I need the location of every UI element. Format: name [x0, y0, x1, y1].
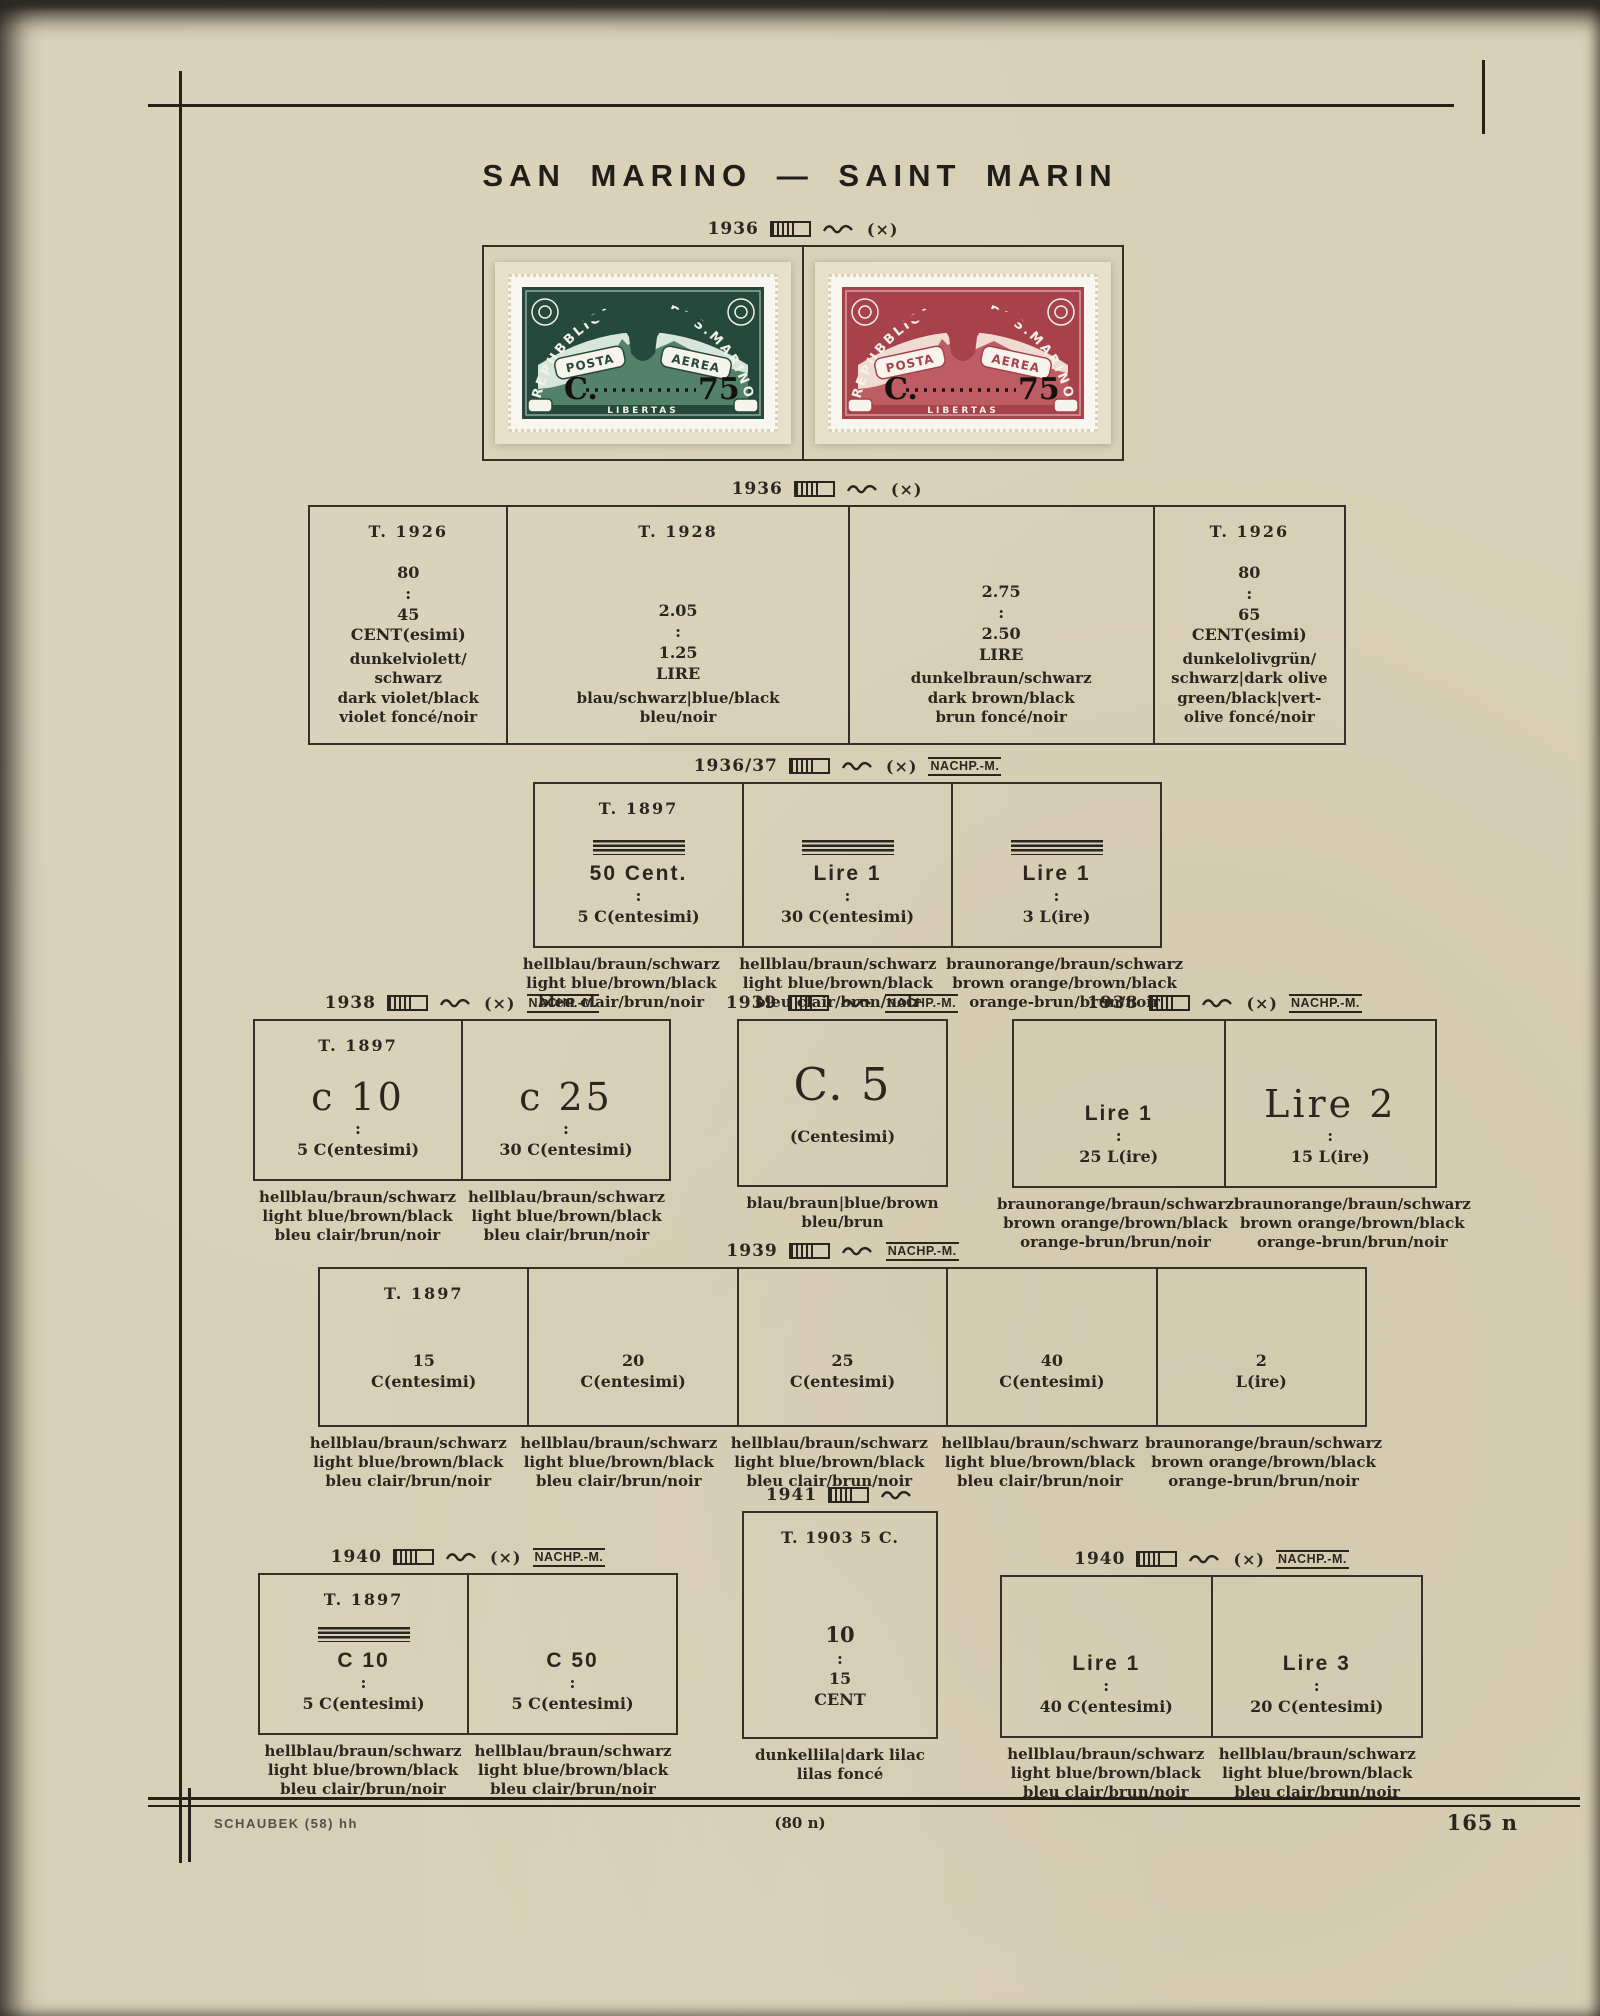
text-line: LIRE: [656, 664, 700, 685]
section-year-header: 1938 (×) NACHP.-M.: [1012, 992, 1437, 1014]
stamp-slot-box: T. 1897 15C(entesimi) 20C(entesimi) 25C(…: [318, 1267, 1367, 1427]
text-line: C(entesimi): [790, 1372, 895, 1393]
text-line: :: [979, 603, 1023, 624]
text-line: :: [297, 1119, 419, 1140]
section-year-header: 1938 (×) NACHP.-M.: [253, 992, 671, 1014]
color-description: dunkelviolett/schwarzdark violet/blackvi…: [338, 650, 479, 727]
text-line: hellblau/braun/schwarz: [1000, 1745, 1212, 1764]
text-line: :: [1291, 1126, 1370, 1147]
overprint-value: Lire 1: [1022, 862, 1090, 886]
text-line: 30 C(entesimi): [499, 1140, 632, 1161]
cross-symbol: (×): [490, 1548, 522, 1567]
perforation-icon: [794, 481, 835, 497]
text-line: 15: [814, 1669, 865, 1690]
text-line: dark violet/black: [338, 689, 479, 708]
denomination: 2L(ire): [1236, 1351, 1287, 1393]
stamp-slot-left: REPUBBLICA DI S.MARINO POSTA AEREA LIBER…: [484, 247, 802, 459]
text-line: 20 C(entesimi): [1250, 1697, 1383, 1718]
stamp-mount-box: REPUBBLICA DI S.MARINO POSTA AEREA LIBER…: [482, 245, 1124, 461]
text-line: 2.50: [979, 624, 1023, 645]
color-caption: blau/braun|blue/brownbleu/brun: [702, 1194, 983, 1232]
text-line: dark brown/black: [911, 689, 1092, 708]
text-line: 80: [351, 563, 466, 584]
stamp-slot-box: Lire 1 :25 L(ire) Lire 2 :15 L(ire): [1012, 1019, 1437, 1188]
text-line: dunkellila|dark lilac: [710, 1746, 970, 1765]
text-line: hellblau/braun/schwarz: [253, 1188, 462, 1207]
medallion-icon: [1048, 299, 1074, 325]
text-line: dunkelviolett/: [338, 650, 479, 669]
denomination: 20C(entesimi): [580, 1351, 685, 1393]
stamp-slot: T. 1897 15C(entesimi): [320, 1269, 527, 1425]
text-line: L(ire): [1236, 1372, 1287, 1393]
svg-text:75: 75: [698, 372, 740, 407]
stamp-slot: 25C(entesimi): [737, 1269, 946, 1425]
text-line: violet foncé/noir: [338, 708, 479, 727]
cross-symbol: (×): [1246, 994, 1278, 1013]
text-line: hellblau/braun/schwarz: [935, 1434, 1146, 1453]
text-line: hellblau/braun/schwarz: [468, 1742, 678, 1761]
text-line: light blue/brown/black: [462, 1207, 671, 1226]
text-line: olive foncé/noir: [1171, 708, 1327, 727]
footer-double-rule: [148, 1797, 1580, 1807]
nachp-symbol: NACHP.-M.: [527, 994, 600, 1013]
stamp-green-75c: REPUBBLICA DI S.MARINO POSTA AEREA LIBER…: [508, 274, 778, 432]
section-year-header: 1939 NACHP.-M.: [702, 992, 982, 1014]
nachp-symbol: NACHP.-M.: [886, 1242, 959, 1261]
stamp-mount: REPUBBLICA DI S.MARINO POSTA AEREA LIBER…: [815, 262, 1111, 444]
year-label: 1936/37: [694, 756, 778, 776]
text-line: light blue/brown/black: [1212, 1764, 1424, 1783]
text-line: 20: [580, 1351, 685, 1372]
text-line: :: [814, 1649, 865, 1670]
text-line: light blue/brown/black: [513, 974, 730, 993]
text-line: 5 C(entesimi): [577, 907, 699, 928]
text-line: :: [351, 584, 466, 605]
text-line: bleu/brun: [702, 1213, 983, 1232]
text-line: 45: [351, 605, 466, 626]
overprint-value: c 10: [311, 1075, 405, 1119]
stamp-red-75c: REPUBBLICA DI S.MARINO POSTA AEREA LIBER…: [828, 274, 1098, 432]
watermark-wavy-icon: [840, 998, 874, 1009]
text-line: brown orange/brown/black: [946, 974, 1183, 993]
stamp-slot: 20C(entesimi): [527, 1269, 736, 1425]
stamp-slot: T. 1897 50 Cent. :5 C(entesimi): [535, 784, 742, 946]
svg-text:LIBERTAS: LIBERTAS: [607, 406, 679, 416]
denomination: :15 L(ire): [1291, 1126, 1370, 1168]
caption-row: dunkellila|dark lilaclilas foncé: [710, 1746, 970, 1784]
section-1936-table: 1936 (×) T. 1926 80:45CENT(esimi) dunkel…: [308, 478, 1346, 745]
stamp-slot-box: T. 1903 5 C. 10:15CENT: [742, 1511, 938, 1739]
caption-row: hellblau/braun/schwarzlight blue/brown/b…: [253, 1188, 671, 1246]
text-line: (Centesimi): [790, 1127, 895, 1148]
text-line: C(entesimi): [371, 1372, 476, 1393]
denomination: :5 C(entesimi): [302, 1673, 424, 1715]
section-year-header: 1941: [710, 1484, 970, 1506]
year-label: 1939: [726, 993, 777, 1013]
cross-symbol: (×): [891, 480, 923, 499]
cross-symbol: (×): [484, 994, 516, 1013]
svg-text:75: 75: [1018, 372, 1060, 407]
nachp-symbol: NACHP.-M.: [533, 1548, 606, 1567]
text-line: bleu/noir: [577, 708, 780, 727]
stamp-image: REPUBBLICA DI S.MARINO POSTA AEREA LIBER…: [842, 287, 1084, 419]
denomination: :25 L(ire): [1079, 1126, 1158, 1168]
stamp-slot-box: C. 5 (Centesimi): [737, 1019, 948, 1187]
text-line: braunorange/braun/schwarz: [946, 955, 1183, 974]
text-line: light blue/brown/black: [258, 1761, 468, 1780]
text-line: 2: [1236, 1351, 1287, 1372]
perforation-icon: [789, 758, 830, 774]
text-line: 2.05: [656, 601, 700, 622]
overprint-value: c 25: [519, 1075, 613, 1119]
stamp-slot: Lire 1 :3 L(ire): [951, 784, 1160, 946]
perforation-icon: [393, 1549, 434, 1565]
denomination: 15C(entesimi): [371, 1351, 476, 1393]
denomination: :5 C(entesimi): [511, 1673, 633, 1715]
nachp-symbol: NACHP.-M.: [928, 757, 1001, 776]
color-caption: hellblau/braun/schwarzlight blue/brown/b…: [462, 1188, 671, 1246]
denomination: 2.75:2.50LIRE: [979, 582, 1023, 665]
text-line: light blue/brown/black: [468, 1761, 678, 1780]
denomination: :30 C(entesimi): [499, 1119, 632, 1161]
frame-left-rule: [179, 71, 182, 1863]
watermark-wavy-icon: [445, 1552, 479, 1563]
section-year-header: 1940 (×) NACHP.-M.: [1000, 1548, 1423, 1570]
watermark-wavy-icon: [1201, 998, 1235, 1009]
overprint-bars-icon: [1011, 840, 1103, 855]
stamp-slot: Lire 1 :25 L(ire): [1014, 1021, 1224, 1186]
type-label: T. 1903 5 C.: [781, 1528, 899, 1547]
text-line: 5 C(entesimi): [297, 1140, 419, 1161]
overprint-value: Lire 1: [813, 862, 881, 886]
perforation-icon: [1149, 995, 1190, 1011]
svg-text:LIBERTAS: LIBERTAS: [927, 406, 999, 416]
perforation-icon: [828, 1487, 869, 1503]
stamp-image: REPUBBLICA DI S.MARINO POSTA AEREA LIBER…: [522, 287, 764, 419]
section-year-header: 1939 NACHP.-M.: [318, 1240, 1367, 1262]
text-line: 1.25: [656, 643, 700, 664]
page-number: 165 n: [1447, 1810, 1518, 1835]
text-line: 25: [790, 1351, 895, 1372]
text-line: dunkelolivgrün/: [1171, 650, 1327, 669]
type-label: T. 1897: [324, 1590, 404, 1609]
frame-right-tick: [1482, 60, 1485, 134]
text-line: blau/braun|blue/brown: [702, 1194, 983, 1213]
perforation-icon: [789, 1243, 830, 1259]
year-label: 1936: [732, 479, 783, 499]
color-caption: braunorange/braun/schwarzbrown orange/br…: [1145, 1434, 1382, 1492]
color-caption: dunkellila|dark lilaclilas foncé: [710, 1746, 970, 1784]
stamp-slot-right: REPUBBLICA DI S.MARINO POSTA AEREA LIBER…: [802, 247, 1122, 459]
plate-number: (80 n): [0, 1814, 1600, 1832]
year-label: 1941: [766, 1485, 817, 1505]
year-label: 1938: [1087, 993, 1138, 1013]
section-year-header: 1936/37 (×) NACHP.-M.: [533, 755, 1162, 777]
text-line: 5 C(entesimi): [302, 1694, 424, 1715]
caption-row: hellblau/braun/schwarzlight blue/brown/b…: [303, 1434, 1382, 1492]
text-line: :: [1250, 1676, 1383, 1697]
text-line: CENT(esimi): [351, 625, 466, 646]
stamp-slot: T. 1928 2.05:1.25LIRE blau/schwarz|blue/…: [506, 507, 847, 743]
frame-top-rule: [148, 104, 1454, 107]
text-line: brown orange/brown/black: [997, 1214, 1234, 1233]
type-label: T. 1897: [384, 1284, 464, 1303]
stamp-slot: T. 1926 80:65CENT(esimi) dunkelolivgrün/…: [1153, 507, 1344, 743]
text-line: light blue/brown/black: [1000, 1764, 1212, 1783]
color-caption: hellblau/braun/schwarzlight blue/brown/b…: [468, 1742, 678, 1800]
denomination: 2.05:1.25LIRE: [656, 601, 700, 684]
overprint-bars-icon: [593, 840, 685, 855]
text-line: hellblau/braun/schwarz: [303, 1434, 514, 1453]
stamp-slot: Lire 1 :30 C(entesimi): [742, 784, 951, 946]
stamp-slot: 2L(ire): [1156, 1269, 1365, 1425]
nachp-symbol: NACHP.-M.: [885, 994, 958, 1013]
medallion-icon: [532, 299, 558, 325]
text-line: LIRE: [979, 645, 1023, 666]
overprint-bars-icon: [802, 840, 894, 855]
denomination: 40C(entesimi): [999, 1351, 1104, 1393]
stamp-slot: T. 1926 80:45CENT(esimi) dunkelviolett/s…: [310, 507, 506, 743]
overprint-value: Lire 3: [1283, 1652, 1351, 1676]
text-line: 30 C(entesimi): [781, 907, 914, 928]
stamp-slot: Lire 2 :15 L(ire): [1224, 1021, 1436, 1186]
nachp-symbol: NACHP.-M.: [1276, 1550, 1349, 1569]
stamp-mount: REPUBBLICA DI S.MARINO POSTA AEREA LIBER…: [495, 262, 791, 444]
type-label: T. 1928: [638, 522, 718, 541]
section-1940-left: 1940 (×) NACHP.-M. T. 1897 C 10 :5 C(ent…: [258, 1546, 678, 1800]
text-line: :: [302, 1673, 424, 1694]
text-line: hellblau/braun/schwarz: [730, 955, 947, 974]
text-line: hellblau/braun/schwarz: [513, 955, 730, 974]
text-line: CENT: [814, 1690, 865, 1711]
text-line: braunorange/braun/schwarz: [1145, 1434, 1382, 1453]
year-label: 1938: [325, 993, 376, 1013]
color-description: dunkelolivgrün/schwarz|dark olivegreen/b…: [1171, 650, 1327, 727]
text-line: hellblau/braun/schwarz: [462, 1188, 671, 1207]
section-year-header: 1936 (×): [308, 478, 1346, 500]
color-description: dunkelbraun/schwarzdark brown/blackbrun …: [911, 669, 1092, 727]
text-line: hellblau/braun/schwarz: [1212, 1745, 1424, 1764]
text-line: light blue/brown/black: [253, 1207, 462, 1226]
watermark-wavy-icon: [841, 1246, 875, 1257]
section-1936-37: 1936/37 (×) NACHP.-M. T. 1897 50 Cent. :…: [533, 755, 1162, 1013]
stamp-slot: T. 1897 c 10 :5 C(entesimi): [255, 1021, 461, 1179]
watermark-wavy-icon: [822, 224, 856, 235]
section-1938-left: 1938 (×) NACHP.-M. T. 1897 c 10 :5 C(ent…: [253, 992, 671, 1246]
text-line: hellblau/braun/schwarz: [514, 1434, 725, 1453]
text-line: dunkelbraun/schwarz: [911, 669, 1092, 688]
text-line: :: [1040, 1676, 1173, 1697]
text-line: :: [1192, 584, 1307, 605]
text-line: bleu clair/brun/noir: [303, 1472, 514, 1491]
text-line: 10: [814, 1621, 865, 1648]
section-1941-middle: 1941 T. 1903 5 C. 10:15CENT dunkellila|d…: [742, 1484, 938, 1784]
text-line: hellblau/braun/schwarz: [724, 1434, 935, 1453]
denomination: 25C(entesimi): [790, 1351, 895, 1393]
stamp-slot-box: T. 1897 C 10 :5 C(entesimi) C 50 :5 C(en…: [258, 1573, 678, 1735]
year-label: 1940: [331, 1547, 382, 1567]
section-1938-right: 1938 (×) NACHP.-M. Lire 1 :25 L(ire) Lir…: [1012, 992, 1437, 1253]
text-line: 2.75: [979, 582, 1023, 603]
stamp-slot-box: T. 1926 80:45CENT(esimi) dunkelviolett/s…: [308, 505, 1346, 745]
text-line: light blue/brown/black: [514, 1453, 725, 1472]
section-1936-stamps: 1936 (×): [482, 218, 1124, 461]
text-line: C(entesimi): [999, 1372, 1104, 1393]
text-line: hellblau/braun/schwarz: [258, 1742, 468, 1761]
medallion-icon: [852, 299, 878, 325]
text-line: orange-brun/brun/noir: [1145, 1472, 1382, 1491]
denomination: (Centesimi): [790, 1127, 895, 1148]
perforation-icon: [770, 221, 811, 237]
text-line: brown orange/brown/black: [1145, 1453, 1382, 1472]
text-line: light blue/brown/black: [730, 974, 947, 993]
text-line: 15: [371, 1351, 476, 1372]
text-line: :: [1023, 886, 1091, 907]
denomination: 80:45CENT(esimi): [351, 563, 466, 646]
overprint-bars-icon: [318, 1627, 410, 1642]
denomination: :40 C(entesimi): [1040, 1676, 1173, 1718]
section-1940-right: 1940 (×) NACHP.-M. Lire 1 :40 C(entesimi…: [1000, 1548, 1423, 1803]
text-line: light blue/brown/black: [724, 1453, 935, 1472]
text-line: 40: [999, 1351, 1104, 1372]
text-line: :: [577, 886, 699, 907]
text-line: brun foncé/noir: [911, 708, 1092, 727]
overprint-value: Lire 1: [1072, 1652, 1140, 1676]
overprint-value: C 10: [337, 1649, 389, 1673]
text-line: schwarz|dark olive: [1171, 669, 1327, 688]
color-caption: hellblau/braun/schwarzlight blue/brown/b…: [303, 1434, 514, 1492]
page-title: SAN MARINO — SAINT MARIN: [0, 158, 1600, 194]
color-caption: hellblau/braun/schwarzlight blue/brown/b…: [514, 1434, 725, 1492]
text-line: 80: [1192, 563, 1307, 584]
section-1939-middle: 1939 NACHP.-M. C. 5 (Centesimi) blau/bra…: [737, 992, 948, 1232]
cross-symbol: (×): [1233, 1550, 1265, 1569]
type-label: T. 1897: [599, 799, 679, 818]
color-description: blau/schwarz|blue/blackbleu/noir: [577, 689, 780, 727]
perforation-icon: [788, 995, 829, 1011]
section-year-header: 1936 (×): [482, 218, 1124, 240]
stamp-slot: C 50 :5 C(entesimi): [467, 1575, 676, 1733]
year-label: 1936: [708, 219, 759, 239]
text-line: braunorange/braun/schwarz: [1234, 1195, 1471, 1214]
stamp-slot: T. 1897 C 10 :5 C(entesimi): [260, 1575, 467, 1733]
perforation-icon: [387, 995, 428, 1011]
text-line: bleu clair/brun/noir: [514, 1472, 725, 1491]
text-line: 3 L(ire): [1023, 907, 1091, 928]
color-caption: hellblau/braun/schwarzlight blue/brown/b…: [1212, 1745, 1424, 1803]
perforation-icon: [1136, 1551, 1177, 1567]
cross-symbol: (×): [886, 757, 918, 776]
nachp-symbol: NACHP.-M.: [1289, 994, 1362, 1013]
overprint-value: C. 5: [793, 1058, 891, 1111]
stamp-slot-box: T. 1897 c 10 :5 C(entesimi) c 25 :30 C(e…: [253, 1019, 671, 1181]
watermark-wavy-icon: [439, 998, 473, 1009]
watermark-wavy-icon: [841, 761, 875, 772]
stamp-slot: 40C(entesimi): [946, 1269, 1155, 1425]
text-line: blau/schwarz|blue/black: [577, 689, 780, 708]
text-line: :: [1079, 1126, 1158, 1147]
denomination: :3 L(ire): [1023, 886, 1091, 928]
text-line: schwarz: [338, 669, 479, 688]
stamp-slot: T. 1903 5 C. 10:15CENT: [744, 1513, 936, 1737]
overprint-value: C 50: [546, 1649, 598, 1673]
color-caption: hellblau/braun/schwarzlight blue/brown/b…: [935, 1434, 1146, 1492]
caption-row: hellblau/braun/schwarzlight blue/brown/b…: [258, 1742, 678, 1800]
text-line: light blue/brown/black: [935, 1453, 1146, 1472]
album-page: SAN MARINO — SAINT MARIN 1936 (×): [0, 0, 1600, 2016]
stamp-slot: Lire 3 :20 C(entesimi): [1211, 1577, 1422, 1736]
stamp-slot-box: Lire 1 :40 C(entesimi) Lire 3 :20 C(ente…: [1000, 1575, 1423, 1738]
text-line: 65: [1192, 605, 1307, 626]
text-line: green/black|vert-: [1171, 689, 1327, 708]
text-line: 25 L(ire): [1079, 1147, 1158, 1168]
denomination: 10:15CENT: [814, 1621, 865, 1711]
watermark-wavy-icon: [846, 484, 880, 495]
caption-row: hellblau/braun/schwarzlight blue/brown/b…: [1000, 1745, 1423, 1803]
denomination: :5 C(entesimi): [577, 886, 699, 928]
color-caption: hellblau/braun/schwarzlight blue/brown/b…: [258, 1742, 468, 1800]
stamp-slot: 2.75:2.50LIRE dunkelbraun/schwarzdark br…: [848, 507, 1153, 743]
text-line: :: [499, 1119, 632, 1140]
color-caption: hellblau/braun/schwarzlight blue/brown/b…: [253, 1188, 462, 1246]
year-label: 1939: [726, 1241, 777, 1261]
denomination: 80:65CENT(esimi): [1192, 563, 1307, 646]
text-line: brown orange/brown/black: [1234, 1214, 1471, 1233]
svg-text:C.: C.: [884, 372, 918, 407]
text-line: :: [781, 886, 914, 907]
watermark-wavy-icon: [880, 1490, 914, 1501]
caption-row: blau/braun|blue/brownbleu/brun: [702, 1194, 983, 1232]
text-line: :: [656, 622, 700, 643]
cross-symbol: (×): [867, 220, 899, 239]
text-line: lilas foncé: [710, 1765, 970, 1784]
denomination: :30 C(entesimi): [781, 886, 914, 928]
stamp-slot: C. 5 (Centesimi): [739, 1021, 946, 1185]
watermark-wavy-icon: [1188, 1554, 1222, 1565]
text-line: :: [511, 1673, 633, 1694]
color-caption: hellblau/braun/schwarzlight blue/brown/b…: [1000, 1745, 1212, 1803]
type-label: T. 1926: [368, 522, 448, 541]
stamp-slot-box: T. 1897 50 Cent. :5 C(entesimi) Lire 1 :…: [533, 782, 1162, 948]
overprint-value: Lire 2: [1264, 1082, 1396, 1126]
text-line: light blue/brown/black: [303, 1453, 514, 1472]
svg-text:C.: C.: [564, 372, 598, 407]
text-line: 15 L(ire): [1291, 1147, 1370, 1168]
year-label: 1940: [1074, 1549, 1125, 1569]
color-caption: hellblau/braun/schwarzlight blue/brown/b…: [724, 1434, 935, 1492]
text-line: C(entesimi): [580, 1372, 685, 1393]
section-1939-table: 1939 NACHP.-M. T. 1897 15C(entesimi) 20C…: [318, 1240, 1367, 1492]
stamp-slot: c 25 :30 C(entesimi): [461, 1021, 669, 1179]
text-line: 5 C(entesimi): [511, 1694, 633, 1715]
denomination: :5 C(entesimi): [297, 1119, 419, 1161]
type-label: T. 1897: [318, 1036, 398, 1055]
section-year-header: 1940 (×) NACHP.-M.: [258, 1546, 678, 1568]
text-line: braunorange/braun/schwarz: [997, 1195, 1234, 1214]
denomination: :20 C(entesimi): [1250, 1676, 1383, 1718]
text-line: 40 C(entesimi): [1040, 1697, 1173, 1718]
stamp-slot: Lire 1 :40 C(entesimi): [1002, 1577, 1211, 1736]
overprint-value: 50 Cent.: [590, 862, 688, 886]
text-line: CENT(esimi): [1192, 625, 1307, 646]
overprint-value: Lire 1: [1085, 1102, 1153, 1126]
type-label: T. 1926: [1210, 522, 1290, 541]
medallion-icon: [728, 299, 754, 325]
